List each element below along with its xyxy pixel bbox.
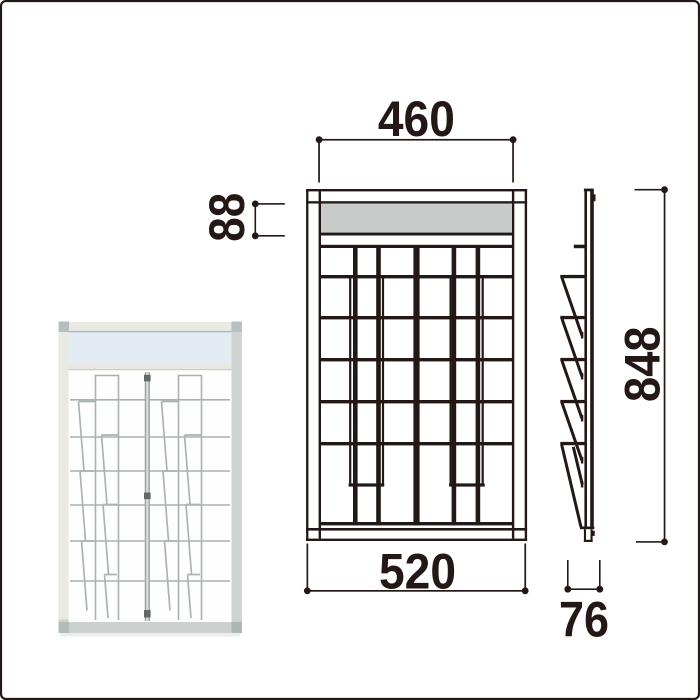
svg-text:520: 520: [379, 543, 456, 599]
svg-text:460: 460: [378, 91, 455, 147]
svg-text:848: 848: [614, 326, 670, 402]
svg-text:76: 76: [559, 592, 609, 648]
svg-text:88: 88: [199, 193, 255, 242]
